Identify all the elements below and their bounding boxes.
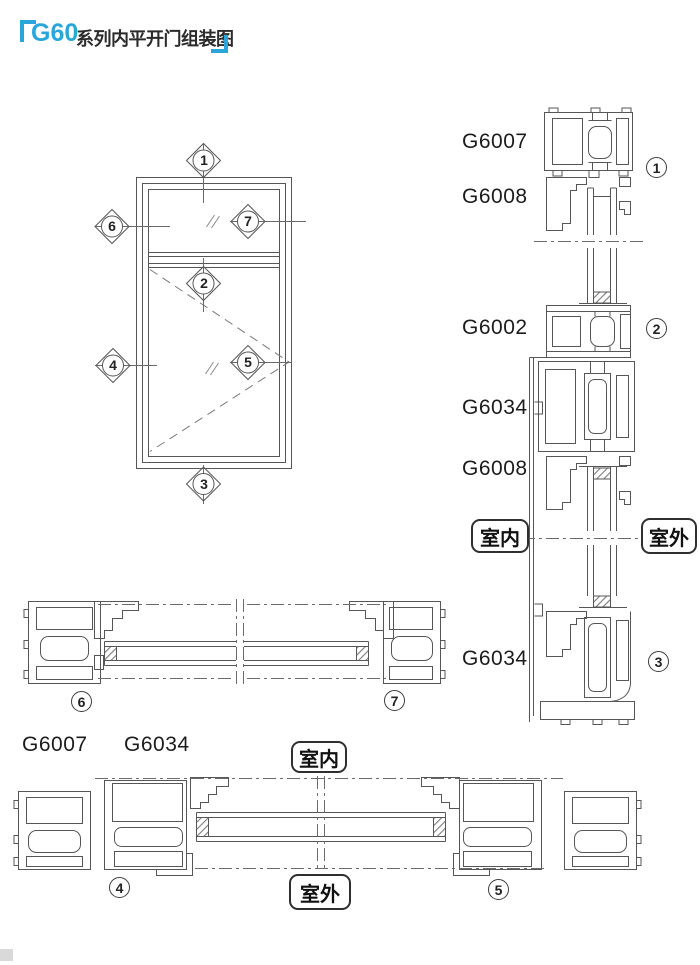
bottom-label-g6034: G6034 xyxy=(124,733,190,757)
door-opening-dashes xyxy=(150,270,289,452)
elevation-marker-2: 2 xyxy=(195,275,213,292)
circled-number-5: 5 xyxy=(488,879,509,900)
profile-label-g6008-bottom: G6008 xyxy=(462,457,528,481)
outdoor-label-bottom: 室外 xyxy=(289,874,351,910)
circled-number-6: 6 xyxy=(71,691,92,712)
vertical-section-strip xyxy=(522,108,650,725)
indoor-label-bottom: 室内 xyxy=(291,741,347,773)
circled-number-4: 4 xyxy=(109,877,130,898)
elevation-marker-3: 3 xyxy=(195,476,213,493)
section-markers xyxy=(95,144,265,502)
profile-label-g6007: G6007 xyxy=(462,130,528,154)
marker-leader-lines xyxy=(95,143,306,504)
circled-number-2: 2 xyxy=(646,318,667,339)
elevation-marker-6: 6 xyxy=(103,218,121,235)
horizontal-section-row-top xyxy=(24,599,445,685)
elevation-marker-1: 1 xyxy=(195,152,213,169)
indoor-label-strip: 室内 xyxy=(471,519,529,553)
circled-number-7: 7 xyxy=(384,690,405,711)
profile-label-g6008-top: G6008 xyxy=(462,185,528,209)
circled-number-1: 1 xyxy=(646,157,667,178)
assembly-line-art xyxy=(0,0,700,965)
bottom-label-g6007: G6007 xyxy=(22,733,88,757)
horizontal-section-row-bottom xyxy=(14,776,641,876)
profile-label-g6034-mid: G6034 xyxy=(462,396,528,420)
elevation-marker-7: 7 xyxy=(239,213,257,230)
outdoor-label-strip: 室外 xyxy=(641,518,697,554)
elevation-marker-4: 4 xyxy=(104,357,122,374)
profile-label-g6002: G6002 xyxy=(462,316,528,340)
page-corner-artifact xyxy=(0,949,13,961)
elevation-marker-5: 5 xyxy=(239,354,257,371)
assembly-diagram-page: G60 系列内平开门组装图 xyxy=(0,0,700,965)
profile-label-g6034-bottom: G6034 xyxy=(462,647,528,671)
circled-number-3: 3 xyxy=(648,651,669,672)
elevation-drawing xyxy=(95,143,306,504)
